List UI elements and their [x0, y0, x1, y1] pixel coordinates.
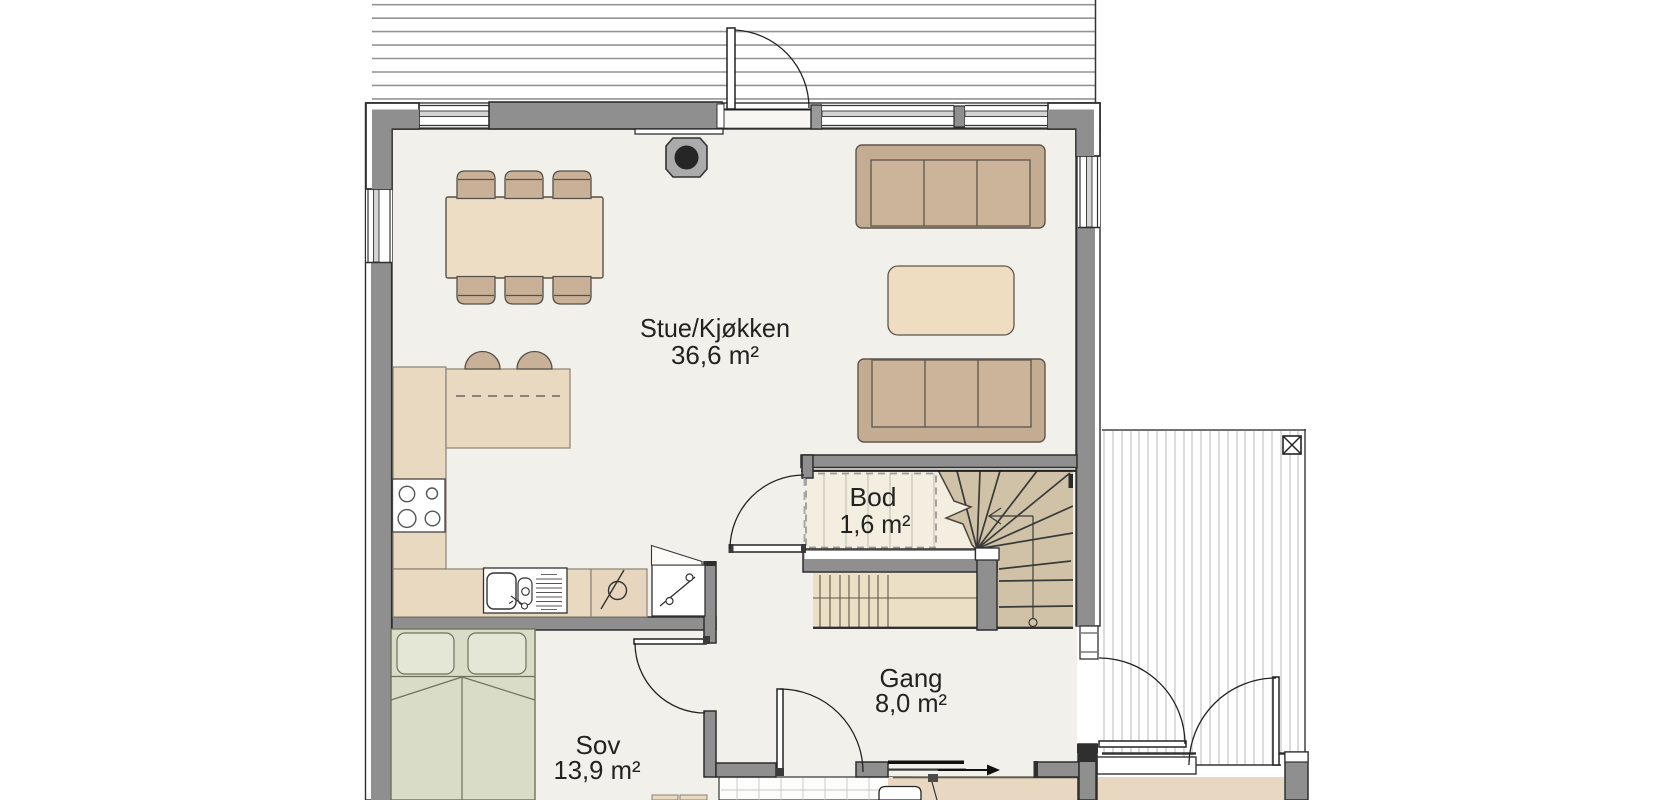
- svg-text:8,0 m²: 8,0 m²: [875, 688, 947, 718]
- svg-text:1,6 m²: 1,6 m²: [840, 509, 911, 539]
- svg-text:13,9 m²: 13,9 m²: [554, 755, 641, 785]
- svg-text:Bod: Bod: [850, 482, 897, 512]
- svg-text:Stue/Kjøkken: Stue/Kjøkken: [640, 313, 790, 343]
- svg-text:36,6 m²: 36,6 m²: [671, 340, 759, 370]
